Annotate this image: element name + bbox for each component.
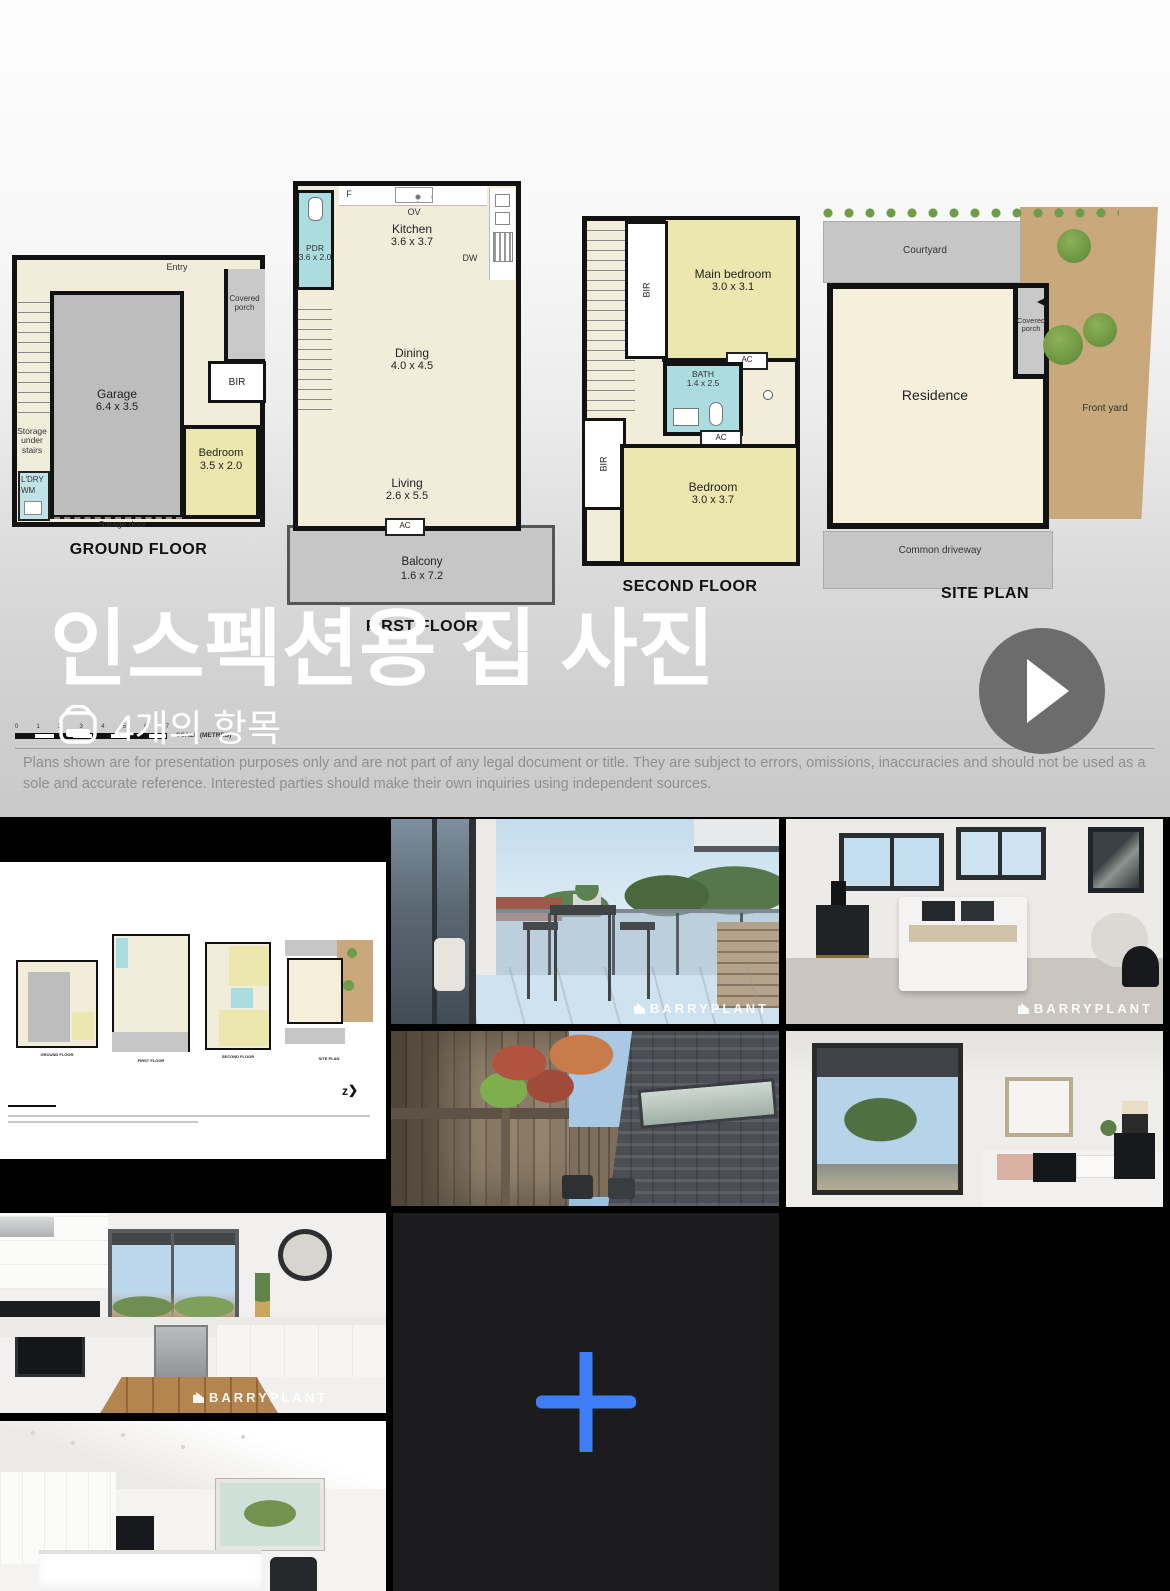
add-photos-button[interactable] (393, 1213, 779, 1591)
bar-table-top (550, 905, 616, 915)
disclaimer-line2: accurate reference. Interested parties s… (82, 776, 712, 792)
bedroom2-artwork (1005, 1077, 1073, 1137)
door-mullion (432, 819, 437, 1024)
mini-residence (287, 958, 343, 1024)
tree-icon-1 (1057, 229, 1091, 263)
sink-icon2 (495, 212, 510, 225)
watermark-kitchen1: BARRYPLANT (193, 1390, 328, 1405)
mini-second (205, 942, 271, 1050)
window-mullion-1 (890, 838, 894, 885)
storage-label: Storage under stairs (13, 427, 51, 455)
balcony-glass-door (391, 819, 476, 1024)
item-count-label: 4개의 항목 (114, 698, 281, 752)
kitchen1-rangehood (0, 1217, 54, 1237)
pillow-dark-2 (961, 901, 994, 922)
bedroom2-blind (817, 1048, 958, 1076)
photo-side-yard[interactable] (391, 1031, 779, 1206)
second-bir-top-label: BIR (641, 282, 651, 297)
dw-label: DW (455, 254, 485, 264)
ground-floor-plan: BIR Garage 6.4 x 3.5 Bedroom 3.5 x 2.0 E… (12, 255, 268, 560)
brick-window-strip (638, 1078, 777, 1128)
drainer-icon (493, 232, 513, 262)
mini-site (285, 940, 373, 1050)
bedroom1-lamp (831, 881, 846, 906)
bed-throw (909, 925, 1017, 942)
shower-light-icon (763, 390, 773, 400)
mini-ground (16, 960, 98, 1048)
bedroom2-street-view (817, 1164, 958, 1189)
second-bir-top: BIR (625, 221, 668, 359)
mini-bath (231, 988, 253, 1008)
photo-bedroom-2[interactable] (786, 1031, 1163, 1207)
bedroom2-tree-view (831, 1079, 930, 1153)
ground-porch-area (224, 269, 265, 363)
autumn-foliage (461, 1031, 655, 1110)
second-floor-plan: BIR Main bedroom3.0 x 3.1 AC BATH1.4 x 2… (578, 212, 806, 602)
garage-name: Garage (97, 387, 137, 401)
bedroom2-plant (1099, 1119, 1118, 1137)
play-icon (1027, 659, 1069, 723)
mini-courtyard (285, 940, 337, 956)
mini-tree1 (347, 948, 357, 958)
mini-ground-bed (72, 1012, 94, 1040)
kitchen1-dishwasher (154, 1325, 208, 1381)
garage-dims: 6.4 x 3.5 (72, 401, 162, 414)
balcony-wall-strip (476, 819, 495, 975)
garage-label: Garage 6.4 x 3.5 (72, 387, 162, 414)
ground-bir-label: BIR (229, 377, 246, 388)
kitchen2-island (39, 1550, 263, 1591)
bedroom1-side-table (1122, 946, 1160, 987)
ground-stairs (18, 293, 50, 421)
compass-icon: z❯ (342, 1084, 362, 1098)
entry-label: Entry (152, 263, 202, 273)
pillow-blush (997, 1154, 1033, 1180)
driveway-area (823, 531, 1053, 589)
ground-bedroom-label: Bedroom 3.5 x 2.0 (184, 447, 258, 473)
yard-chair-1 (562, 1175, 593, 1200)
stool-2 (620, 922, 655, 930)
living-label: Living2.6 x 5.5 (342, 476, 472, 503)
mini-ground-title: GROUND FLOOR (16, 1052, 98, 1057)
stove-icon (395, 187, 433, 203)
mini-garage (28, 972, 70, 1042)
second-bedroom-label: Bedroom3.0 x 3.7 (648, 480, 778, 507)
album-icon (56, 705, 100, 745)
window-mullion-2 (998, 832, 1002, 875)
kitchen2-oven (116, 1516, 155, 1550)
fridge-label: F (343, 190, 355, 200)
mini-pdr (116, 938, 128, 968)
watermark-balcony: BARRYPLANT (634, 1001, 769, 1016)
mini-disclaimer-line1 (8, 1115, 370, 1117)
front-yard-label: Front yard (1055, 403, 1155, 414)
balcony-label: Balcony1.6 x 7.2 (357, 556, 487, 583)
ground-bir-box: BIR (208, 361, 266, 403)
barryplant-logo-icon (634, 1003, 645, 1014)
mini-second-bed (219, 1010, 269, 1046)
photo-grid: GROUND FLOOR FIRST FLOOR SECOND FLOOR (0, 817, 1170, 1590)
kitchen2-stool (270, 1557, 316, 1591)
site-porch-label: Covered porch (1012, 317, 1050, 334)
bath-label: BATH1.4 x 2.5 (670, 370, 736, 389)
stool-1 (523, 922, 558, 930)
table-plant (573, 885, 600, 906)
thumb-floorplan[interactable]: GROUND FLOOR FIRST FLOOR SECOND FLOOR (0, 819, 386, 1191)
floorplan-hero-image[interactable]: BIR Garage 6.4 x 3.5 Bedroom 3.5 x 2.0 E… (0, 0, 1170, 817)
mini-second-title: SECOND FLOOR (205, 1054, 271, 1059)
garage-door-label: Garage door (82, 520, 162, 529)
residence-label: Residence (855, 387, 1015, 404)
pillow-white (1076, 1155, 1116, 1178)
plus-icon (536, 1352, 636, 1452)
bedroom1-artwork (1088, 827, 1145, 893)
pillow-dark-1 (922, 901, 955, 922)
pdr-toilet-icon (308, 197, 323, 221)
bedroom2-lamp (1122, 1101, 1148, 1133)
kitchen1-view (112, 1292, 235, 1317)
table-leg-2 (608, 915, 611, 1001)
bedroom1-cabinet (816, 905, 869, 958)
tree-icon-2 (1043, 325, 1083, 365)
first-ac-box: AC (385, 518, 425, 536)
yard-chair-2 (608, 1178, 635, 1199)
mini-main-bed (229, 946, 269, 986)
ground-floor-title: GROUND FLOOR (12, 541, 265, 559)
stool-2-leg (647, 930, 650, 1000)
bath-toilet-icon (709, 402, 723, 426)
hedge-row (823, 207, 1119, 219)
disclaimer-text: Plans shown are for presentation purpose… (23, 753, 1151, 795)
kitchen1-plant (255, 1273, 270, 1317)
play-button[interactable] (979, 628, 1105, 754)
mini-disclaimer-line2 (8, 1121, 198, 1123)
mini-driveway (285, 1028, 345, 1044)
ground-bedroom-dims: 3.5 x 2.0 (184, 460, 258, 473)
kitchen1-mirror (278, 1229, 332, 1281)
oven-label: OV (399, 208, 429, 218)
mini-scale-bar (8, 1105, 56, 1107)
pillow-black (1033, 1153, 1076, 1182)
kitchen2-window (216, 1479, 324, 1550)
site-plan: Courtyard Covered porch Residence Front … (815, 205, 1160, 605)
kitchen1-cooktop (0, 1301, 100, 1317)
site-entry-arrow (1037, 297, 1047, 307)
ldry-label: L'DRY (21, 476, 49, 485)
kitchen1-window (108, 1229, 239, 1321)
laundry-box: L'DRY WM (18, 471, 50, 521)
courtyard-label: Courtyard (875, 245, 975, 256)
washing-machine-icon (24, 501, 42, 515)
sink-icon (495, 194, 510, 207)
balcony-building-corner (694, 819, 779, 852)
ground-bedroom-name: Bedroom (199, 447, 244, 459)
watermark-bedroom1: BARRYPLANT (1018, 1001, 1153, 1016)
photo-balcony[interactable]: BARRYPLANT (391, 819, 779, 1024)
bedroom1-window-right (956, 827, 1046, 880)
driveway-label: Common driveway (875, 545, 1005, 556)
bath-basin-icon (673, 408, 699, 426)
wm-label: WM (21, 487, 49, 496)
bedroom1-bed (899, 897, 1027, 991)
mini-tree2 (343, 980, 354, 991)
porch-label: Covered porch (224, 295, 265, 313)
main-bedroom-label: Main bedroom3.0 x 3.1 (678, 267, 788, 294)
item-count-row: 4개의 항목 (56, 698, 281, 752)
stool-1-leg (527, 930, 530, 1000)
photo-kitchen-2[interactable] (0, 1421, 386, 1591)
photo-bedroom-1[interactable]: BARRYPLANT (786, 819, 1163, 1024)
sink-bench (489, 188, 515, 280)
photo-kitchen-1[interactable]: BARRYPLANT (0, 1213, 386, 1413)
mini-first-title: FIRST FLOOR (112, 1058, 190, 1063)
second-bir-bottom-label: BIR (599, 456, 609, 471)
mini-first (112, 934, 190, 1052)
bedroom1-window-left (839, 833, 945, 890)
sofa-through-glass (434, 938, 465, 991)
pdr-room (296, 190, 334, 290)
barryplant-logo-icon (193, 1392, 204, 1403)
kitchen-label: Kitchen3.6 x 3.7 (357, 222, 467, 249)
bedroom2-side-table (1114, 1133, 1155, 1179)
tree-icon-3 (1083, 313, 1117, 347)
bedroom2-window (812, 1043, 963, 1194)
mini-balcony (112, 1032, 188, 1052)
first-stairs (298, 300, 332, 418)
mini-site-title: SITE PLAN (285, 1056, 373, 1061)
kitchen1-lower-cabinets (216, 1325, 386, 1377)
kitchen2-tree-view (230, 1493, 310, 1534)
barryplant-logo-icon (1018, 1003, 1029, 1014)
pdr-label: PDR3.6 x 2.0 (295, 244, 335, 263)
dining-label: Dining4.0 x 4.5 (347, 346, 477, 373)
thumb-floorplan-page: GROUND FLOOR FIRST FLOOR SECOND FLOOR (0, 862, 386, 1159)
